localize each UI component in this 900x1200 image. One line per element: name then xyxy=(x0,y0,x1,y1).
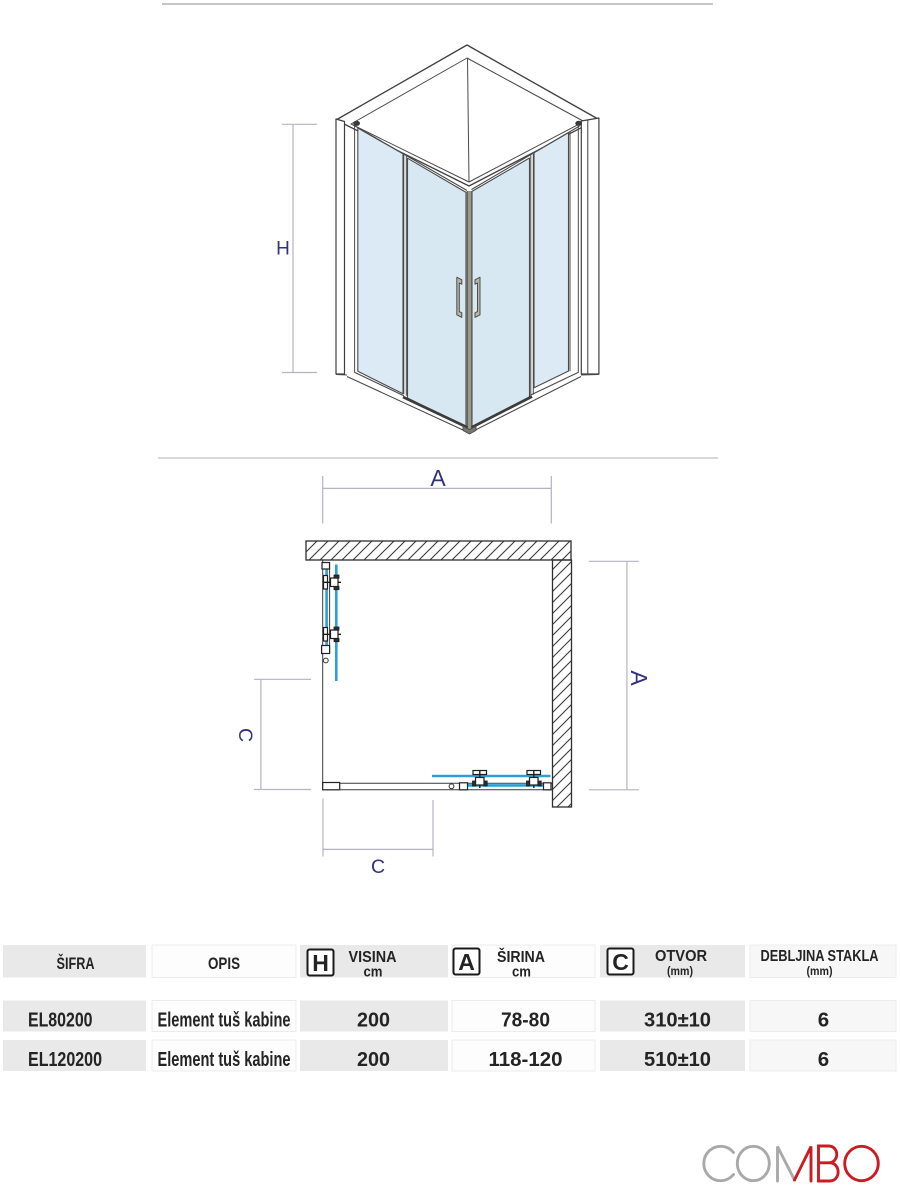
svg-text:6: 6 xyxy=(818,1009,829,1032)
svg-text:H: H xyxy=(276,239,290,260)
svg-text:A: A xyxy=(430,465,446,491)
svg-text:200: 200 xyxy=(357,1048,390,1071)
svg-text:H: H xyxy=(312,950,329,976)
svg-text:(mm): (mm) xyxy=(667,964,693,978)
svg-text:ŠIFRA: ŠIFRA xyxy=(57,954,95,973)
svg-text:78-80: 78-80 xyxy=(501,1009,550,1032)
svg-text:OTVOR: OTVOR xyxy=(655,948,707,965)
svg-text:C: C xyxy=(612,949,629,975)
svg-text:EL120200: EL120200 xyxy=(28,1048,102,1071)
svg-text:A: A xyxy=(626,670,652,686)
svg-text:C: C xyxy=(371,856,385,878)
svg-text:cm: cm xyxy=(364,964,383,981)
svg-text:118-120: 118-120 xyxy=(489,1048,563,1071)
svg-text:A: A xyxy=(458,949,475,975)
svg-text:310±10: 310±10 xyxy=(644,1009,711,1032)
svg-text:DEBLJINA STAKLA: DEBLJINA STAKLA xyxy=(761,948,879,965)
svg-text:6: 6 xyxy=(818,1048,829,1071)
svg-text:cm: cm xyxy=(512,964,531,981)
svg-text:Element tuš kabine: Element tuš kabine xyxy=(158,1009,291,1032)
svg-text:OPIS: OPIS xyxy=(208,954,240,973)
svg-text:(mm): (mm) xyxy=(807,964,833,978)
svg-text:510±10: 510±10 xyxy=(644,1048,711,1071)
svg-text:EL80200: EL80200 xyxy=(28,1009,93,1032)
svg-text:C: C xyxy=(234,728,256,742)
svg-text:Element tuš kabine: Element tuš kabine xyxy=(158,1048,291,1071)
svg-text:200: 200 xyxy=(357,1009,390,1032)
